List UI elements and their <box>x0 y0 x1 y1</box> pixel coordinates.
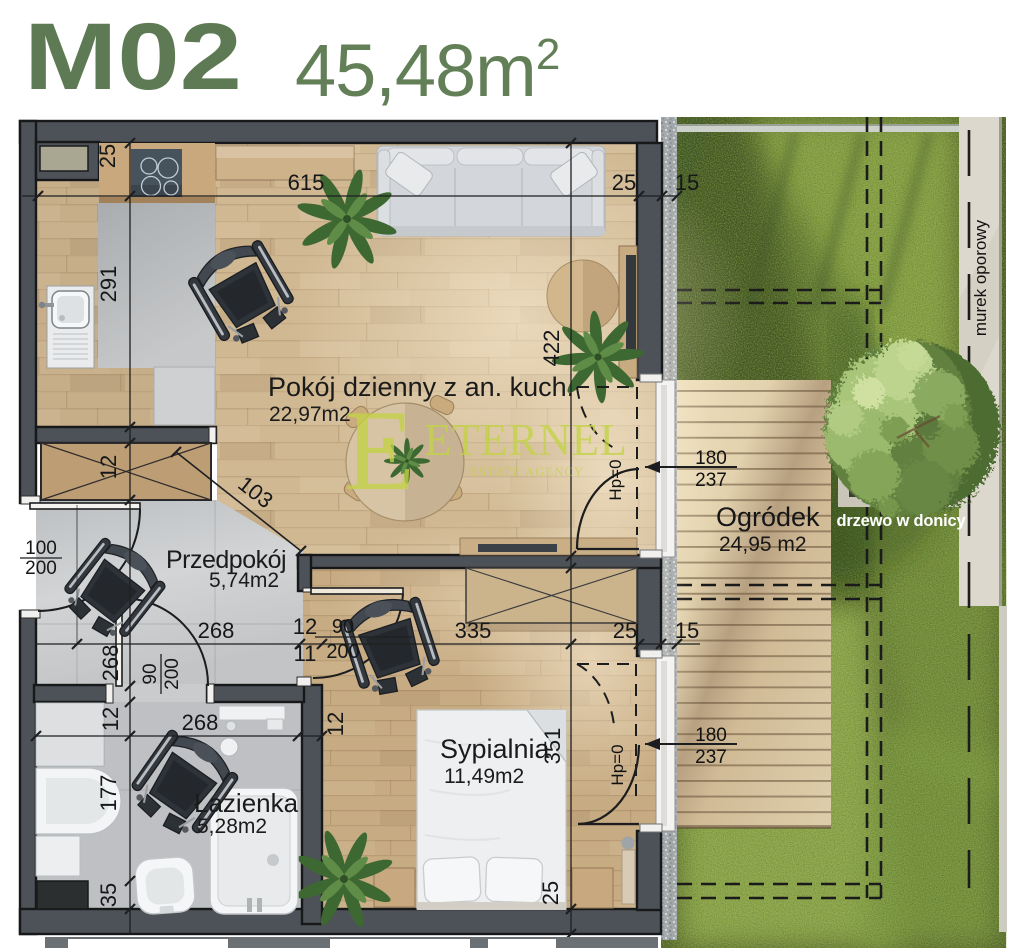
svg-text:ETERNEL: ETERNEL <box>424 415 627 465</box>
svg-text:12: 12 <box>96 455 121 479</box>
svg-text:200: 200 <box>326 641 359 663</box>
svg-text:15: 15 <box>675 170 699 195</box>
svg-text:422: 422 <box>539 330 564 367</box>
svg-text:90: 90 <box>332 616 354 638</box>
svg-text:E: E <box>344 387 415 515</box>
svg-text:Hp=0: Hp=0 <box>608 744 627 785</box>
svg-text:15: 15 <box>675 618 699 643</box>
svg-text:Hp=0: Hp=0 <box>606 459 625 500</box>
svg-text:180: 180 <box>695 725 727 746</box>
svg-text:12: 12 <box>98 707 123 731</box>
svg-text:615: 615 <box>288 170 325 195</box>
svg-text:335: 335 <box>455 618 492 643</box>
svg-text:M02: M02 <box>24 4 242 110</box>
svg-text:35: 35 <box>96 883 121 907</box>
svg-text:12: 12 <box>293 614 317 639</box>
svg-text:100: 100 <box>25 538 57 559</box>
svg-text:177: 177 <box>96 775 121 812</box>
svg-text:Łazienka: Łazienka <box>194 788 299 818</box>
svg-text:268: 268 <box>198 618 235 643</box>
svg-text:5,28m2: 5,28m2 <box>197 815 267 838</box>
svg-text:45,48m2: 45,48m2 <box>295 29 559 112</box>
svg-text:25: 25 <box>95 144 120 168</box>
svg-text:11: 11 <box>294 641 317 666</box>
svg-text:268: 268 <box>98 645 123 682</box>
svg-text:Sypialnia: Sypialnia <box>440 734 551 764</box>
svg-text:12: 12 <box>323 712 348 736</box>
svg-text:Ogródek: Ogródek <box>716 502 820 532</box>
svg-text:5,74m2: 5,74m2 <box>209 569 279 592</box>
svg-text:11,49m2: 11,49m2 <box>444 765 524 788</box>
svg-text:291: 291 <box>96 266 121 303</box>
svg-text:180: 180 <box>695 448 727 469</box>
svg-text:25: 25 <box>612 170 636 195</box>
svg-text:237: 237 <box>695 470 727 491</box>
svg-text:90: 90 <box>140 663 161 684</box>
svg-text:200: 200 <box>162 658 183 690</box>
svg-text:24,95 m2: 24,95 m2 <box>719 533 807 556</box>
svg-text:Pokój dzienny z an. kuch.: Pokój dzienny z an. kuch. <box>268 372 574 402</box>
svg-text:268: 268 <box>182 710 219 735</box>
svg-text:22,97m2: 22,97m2 <box>269 403 351 426</box>
svg-text:237: 237 <box>695 747 727 768</box>
svg-text:ESTATE AGENCY: ESTATE AGENCY <box>470 465 584 479</box>
svg-text:drzewo w donicy: drzewo w donicy <box>836 512 966 530</box>
svg-text:25: 25 <box>613 618 637 643</box>
svg-text:200: 200 <box>25 558 57 579</box>
svg-text:25: 25 <box>538 881 563 905</box>
svg-text:murek oporowy: murek oporowy <box>971 219 990 336</box>
